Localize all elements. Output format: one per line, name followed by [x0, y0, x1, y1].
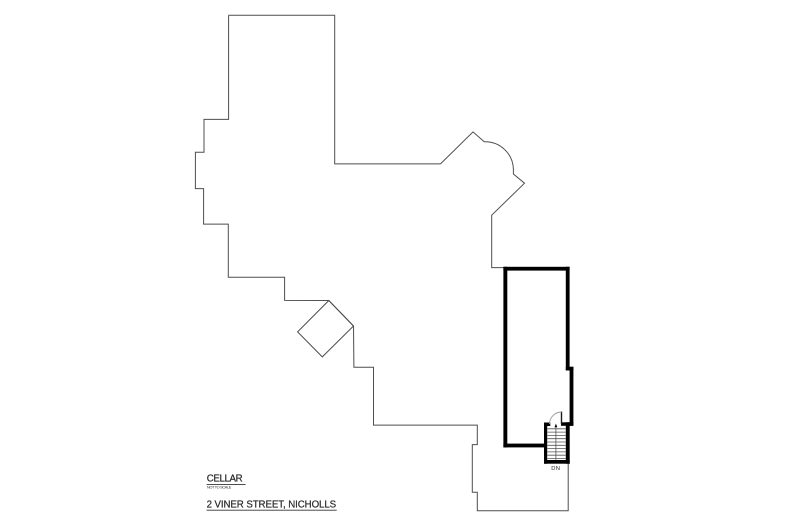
svg-text:NOT TO SCALE: NOT TO SCALE	[207, 486, 232, 490]
svg-text:DN: DN	[551, 466, 560, 472]
svg-text:2 VINER STREET, NICHOLLS: 2 VINER STREET, NICHOLLS	[207, 499, 337, 510]
svg-text:CELLAR: CELLAR	[207, 474, 243, 485]
